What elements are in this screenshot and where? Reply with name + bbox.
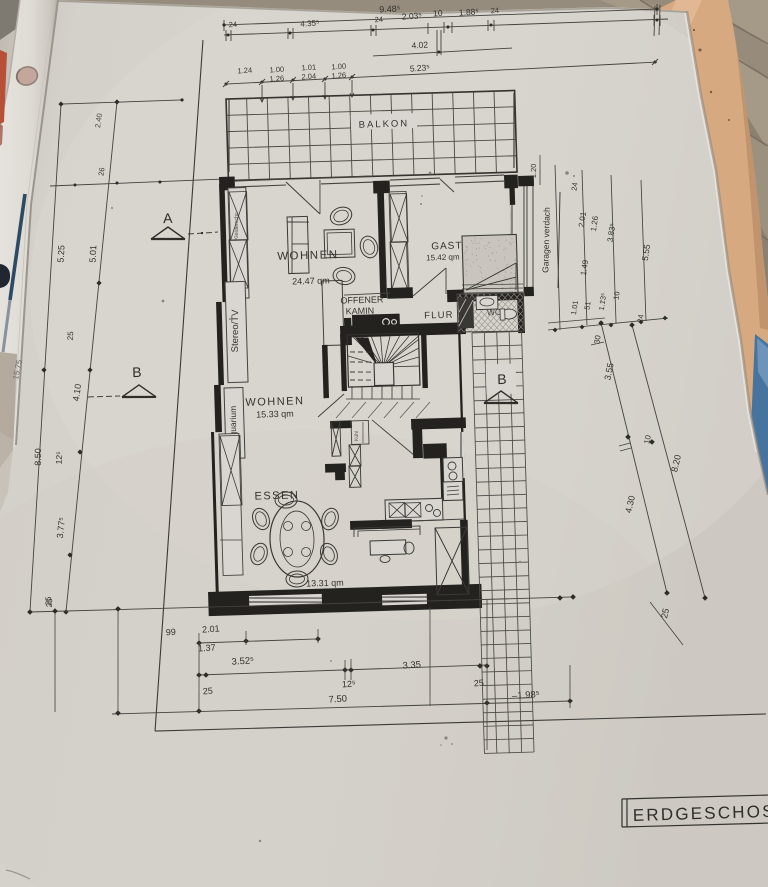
svg-text:2.01: 2.01 [202,623,220,634]
svg-text:25: 25 [202,686,213,697]
svg-text:1.37: 1.37 [198,642,216,653]
svg-text:9.48⁵: 9.48⁵ [379,4,401,15]
svg-text:25: 25 [474,678,485,689]
svg-text:Kleiderschr.: Kleiderschr. [234,211,240,240]
svg-text:8.50: 8.50 [33,448,43,466]
svg-text:KAMIN: KAMIN [345,306,374,317]
svg-text:WOHNEN: WOHNEN [245,395,304,409]
svg-text:12⁵: 12⁵ [54,451,65,465]
svg-text:24: 24 [228,20,237,30]
svg-text:13.31 qm: 13.31 qm [306,577,344,588]
svg-text:24: 24 [490,6,499,16]
svg-text:B: B [497,371,507,387]
svg-text:15.33 qm: 15.33 qm [256,408,294,419]
svg-text:ERDGESCHOS: ERDGESCHOS [633,802,768,825]
svg-text:Kühl: Kühl [354,431,360,441]
svg-text:Stereo/TV: Stereo/TV [230,309,241,352]
svg-text:A: A [163,210,173,226]
svg-text:FLUR: FLUR [424,310,454,322]
svg-text:10: 10 [433,8,443,19]
svg-text:5.25: 5.25 [56,245,67,263]
svg-text:5.01: 5.01 [87,245,98,263]
svg-text:24: 24 [374,15,383,25]
svg-text:25: 25 [66,331,76,341]
svg-text:51: 51 [582,301,592,311]
svg-text:2.04: 2.04 [301,72,316,82]
svg-text:24.47 qm: 24.47 qm [292,275,330,286]
svg-text:1.24: 1.24 [237,66,252,76]
svg-text:OFFENER: OFFENER [340,294,384,305]
svg-text:26: 26 [97,167,107,177]
svg-text:2.03⁵: 2.03⁵ [401,10,422,21]
svg-text:99: 99 [165,627,176,638]
svg-text:GAST: GAST [431,241,463,253]
svg-text:10: 10 [612,291,622,301]
svg-text:Garagen verdach: Garagen verdach [540,207,551,273]
svg-text:ESSEN: ESSEN [254,489,299,502]
svg-text:1.20: 1.20 [529,164,538,179]
svg-text:24: 24 [569,182,579,192]
svg-text:4.35⁵: 4.35⁵ [300,18,319,28]
svg-text:WOHNEN: WOHNEN [277,249,339,263]
svg-text:3.35: 3.35 [402,659,421,671]
svg-text:BALKON: BALKON [359,118,410,130]
svg-text:1.26: 1.26 [331,71,346,81]
svg-text:25: 25 [45,598,55,608]
svg-text:12⁵: 12⁵ [342,679,357,690]
svg-text:3.52⁵: 3.52⁵ [231,655,254,667]
svg-text:B: B [132,364,142,380]
svg-text:4.02: 4.02 [411,39,428,50]
svg-text:–1.98⁵: –1.98⁵ [512,689,540,702]
svg-text:15.42 qm: 15.42 qm [426,252,460,262]
svg-text:1.26: 1.26 [269,74,284,84]
svg-text:1.88⁵: 1.88⁵ [459,6,480,17]
svg-text:7.50: 7.50 [328,693,347,705]
svg-text:5.23⁵: 5.23⁵ [409,62,430,73]
